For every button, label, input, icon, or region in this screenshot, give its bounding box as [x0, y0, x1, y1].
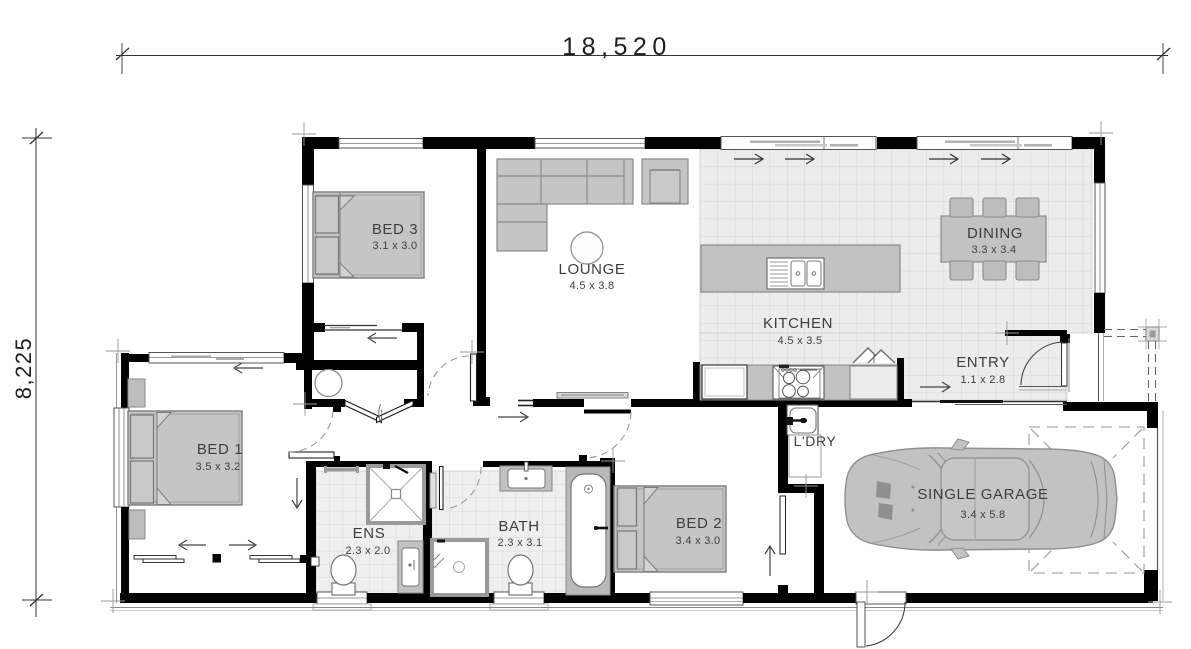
svg-text:SINGLE GARAGE: SINGLE GARAGE: [917, 486, 1048, 503]
svg-text:4.5 x 3.5: 4.5 x 3.5: [778, 335, 823, 347]
svg-text:2.3 x 2.0: 2.3 x 2.0: [346, 545, 391, 557]
svg-text:ENTRY: ENTRY: [956, 354, 1010, 371]
svg-text:LOUNGE: LOUNGE: [559, 261, 626, 278]
svg-text:DINING: DINING: [967, 225, 1023, 242]
svg-text:3.3 x 3.4: 3.3 x 3.4: [972, 244, 1017, 256]
svg-text:8,225: 8,225: [11, 337, 36, 400]
svg-text:3.5 x 3.2: 3.5 x 3.2: [196, 461, 241, 473]
svg-text:4.5 x 3.8: 4.5 x 3.8: [570, 280, 615, 292]
svg-text:3.4 x 3.0: 3.4 x 3.0: [676, 535, 721, 547]
svg-text:18,520: 18,520: [562, 33, 671, 61]
svg-text:3.1 x 3.0: 3.1 x 3.0: [373, 240, 418, 252]
svg-text:BED 3: BED 3: [372, 221, 418, 238]
svg-text:L'DRY: L'DRY: [794, 433, 837, 449]
svg-text:3.4 x 5.8: 3.4 x 5.8: [961, 509, 1006, 521]
svg-text:KITCHEN: KITCHEN: [763, 315, 833, 332]
svg-text:BATH: BATH: [498, 518, 539, 535]
svg-text:ENS: ENS: [353, 525, 386, 542]
svg-text:BED 1: BED 1: [197, 441, 243, 458]
svg-text:2.3 x 3.1: 2.3 x 3.1: [498, 537, 543, 549]
svg-text:1.1 x 2.8: 1.1 x 2.8: [961, 374, 1006, 386]
svg-text:BED 2: BED 2: [676, 515, 722, 532]
